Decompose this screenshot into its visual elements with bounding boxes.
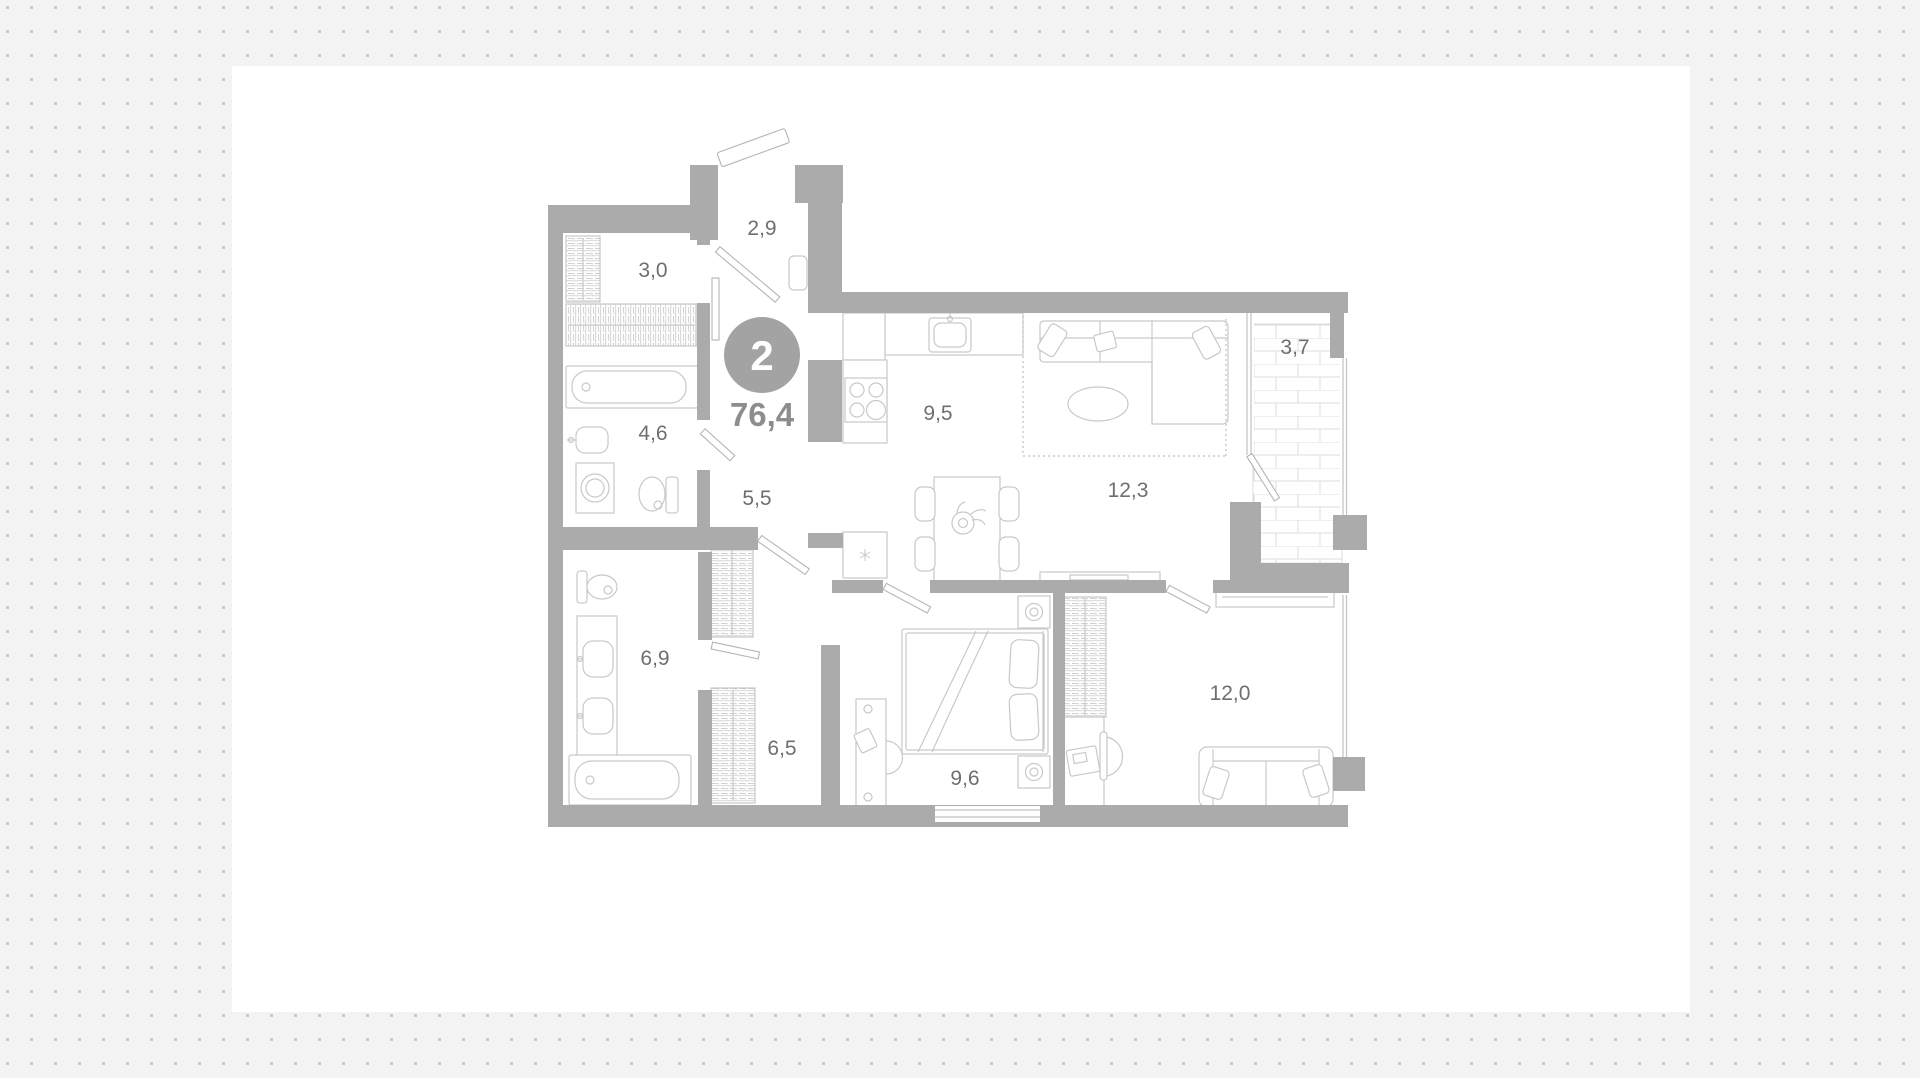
sectional-sofa: [1036, 321, 1228, 424]
hall-wardrobe-lower: [711, 688, 755, 803]
area-balcony: 3,7: [1280, 336, 1309, 359]
wardrobe-closet: [566, 236, 697, 346]
bedroom-door: [883, 583, 930, 613]
area-entry-hall: 2,9: [747, 217, 776, 240]
sink-small-bath: [567, 427, 608, 453]
washing-machine: [576, 463, 614, 513]
rooms-count: 2: [750, 332, 773, 379]
small-bath-door: [700, 429, 734, 461]
entry-hall-door: [715, 247, 779, 302]
desk: [1062, 717, 1104, 808]
rooms-count-badge: 2: [724, 317, 800, 393]
toilet-small-bath: [639, 477, 678, 513]
hall-pinch-door: [758, 536, 810, 575]
balcony-glazing-left: [1244, 313, 1254, 455]
closet-door: [712, 278, 719, 340]
nightstand-bottom: [1018, 756, 1050, 788]
kitchen-counter: [885, 313, 1023, 355]
fridge: [843, 532, 887, 578]
dressing-table: [854, 699, 903, 807]
total-area: 76,4: [730, 396, 795, 433]
balcony-glazing-right: [1340, 358, 1349, 515]
area-closet: 3,0: [638, 259, 667, 282]
sofa-second-room: [1199, 747, 1333, 807]
large-bath-door: [711, 642, 759, 659]
area-hallway: 5,5: [742, 487, 771, 510]
hall-wardrobe-upper: [711, 545, 753, 637]
kitchen-cabinet: [843, 313, 885, 360]
second-room-door: [1166, 585, 1210, 613]
area-bathroom-small: 4,6: [638, 422, 667, 445]
area-second-room: 12,0: [1210, 682, 1251, 705]
entry-door: [717, 128, 790, 167]
page-background: 2,9 3,0 4,6 5,5 9,5 12,3 3,7 6,9 6,5 9,6…: [0, 0, 1920, 1078]
area-living-room: 12,3: [1108, 479, 1149, 502]
dining-table: [915, 477, 1019, 583]
area-corridor: 6,5: [767, 737, 796, 760]
floorplan-drawing: 2,9 3,0 4,6 5,5 9,5 12,3 3,7 6,9 6,5 9,6…: [540, 120, 1380, 840]
area-kitchen: 9,5: [923, 402, 952, 425]
toilet-large-bath: [577, 571, 617, 603]
bed: [902, 629, 1048, 754]
double-vanity: [577, 616, 617, 758]
second-room-window: [1340, 595, 1349, 757]
area-bedroom: 9,6: [950, 767, 979, 790]
rug: [1068, 387, 1128, 421]
bathtub-small: [566, 366, 698, 408]
desk-chair: [1100, 732, 1123, 780]
bedroom-window: [935, 806, 1040, 822]
wardrobe-second-room: [1064, 597, 1106, 717]
entry-cabinet: [789, 256, 807, 290]
area-bathroom-large: 6,9: [640, 647, 669, 670]
tv-shelf-second-room: [1216, 592, 1334, 607]
balcony-floor: [1253, 324, 1342, 563]
nightstand-top: [1018, 596, 1050, 628]
bathtub-large: [569, 755, 691, 805]
stove: [843, 360, 887, 443]
